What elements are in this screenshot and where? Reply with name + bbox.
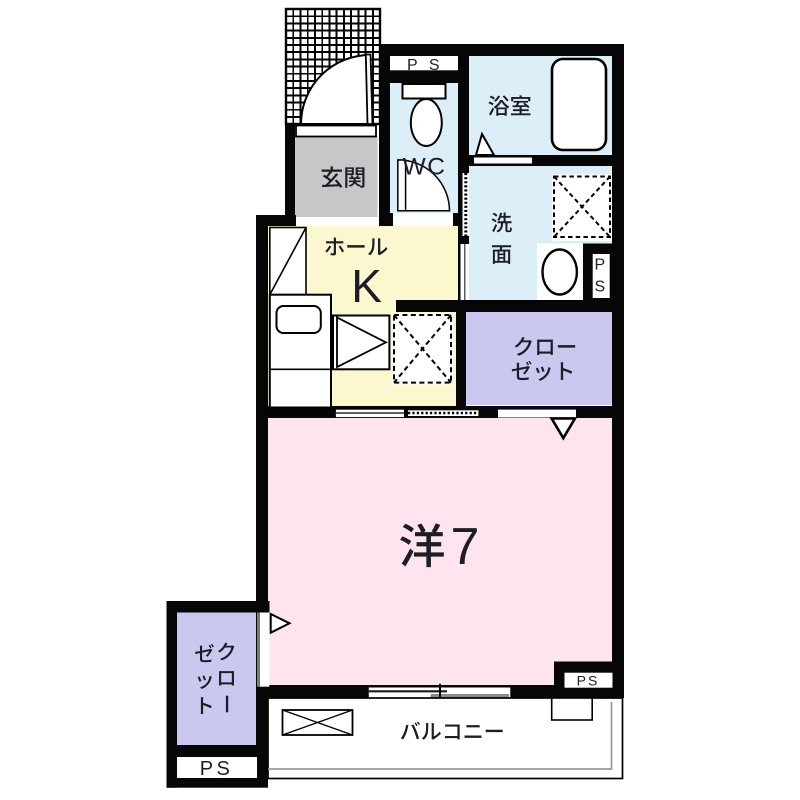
svg-text:WC: WC [403,154,447,181]
svg-text:S: S [594,278,605,295]
svg-text:K: K [351,260,382,312]
svg-text:PS: PS [577,672,600,688]
svg-text:7: 7 [451,518,480,576]
svg-text:P S: P S [407,57,443,74]
svg-text:P: P [594,257,605,274]
svg-text:PS: PS [200,758,233,780]
